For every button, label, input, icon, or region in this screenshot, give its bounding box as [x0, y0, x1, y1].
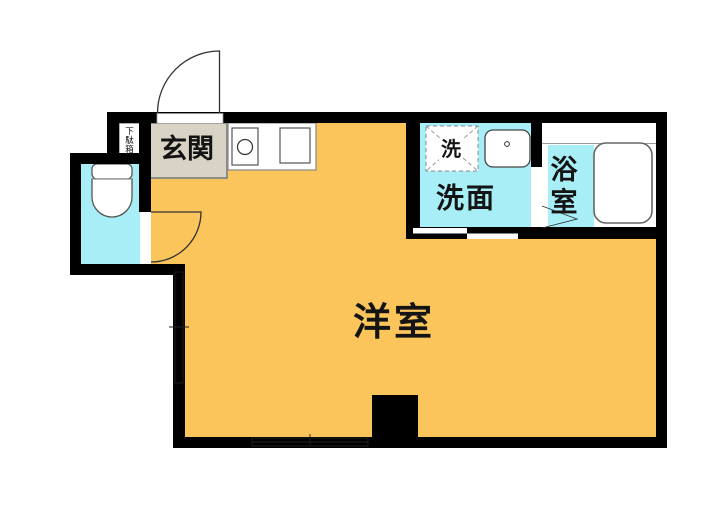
entrance-threshold [157, 114, 223, 124]
wall-toilet-bottom [70, 264, 185, 275]
bathroom-doorway [531, 167, 542, 227]
floor-plan-canvas: 玄関 下 駄 箱 洗 洗面 浴 室 洋室 [0, 0, 720, 512]
bathtub [594, 143, 652, 223]
washroom-sliding-door-panel-1 [413, 228, 467, 234]
toilet-bowl [92, 179, 132, 217]
main-room-label: 洋室 [353, 301, 435, 344]
washing-machine-label: 洗 [441, 138, 461, 161]
wall-toilet-right [139, 123, 151, 212]
bathroom-label-char-2: 室 [551, 187, 578, 218]
kitchen-burner [238, 140, 253, 155]
genkan-label: 玄関 [160, 133, 214, 164]
shoe-cabinet-label-char-3: 箱 [125, 144, 134, 154]
bathroom-label-char-1: 浴 [551, 155, 579, 185]
wall-washroom-bathroom-divider [531, 112, 542, 167]
washroom-label: 洗面 [436, 183, 496, 214]
floor-plan: 玄関 下 駄 箱 洗 洗面 浴 室 洋室 [0, 0, 720, 512]
washroom-sink-drain [505, 142, 510, 147]
kitchen-sink [280, 128, 310, 163]
washroom-sink [485, 130, 530, 167]
toilet-tank [92, 164, 132, 179]
toilet-doorway [140, 212, 151, 264]
wall-washroom-left [406, 112, 420, 239]
washroom-sliding-door-panel-2 [467, 234, 518, 240]
wall-right [656, 112, 667, 448]
wall-toilet-left [70, 153, 81, 275]
pillar [372, 395, 418, 448]
wall-bottom [173, 437, 667, 448]
wall-toilet-top [70, 153, 151, 164]
